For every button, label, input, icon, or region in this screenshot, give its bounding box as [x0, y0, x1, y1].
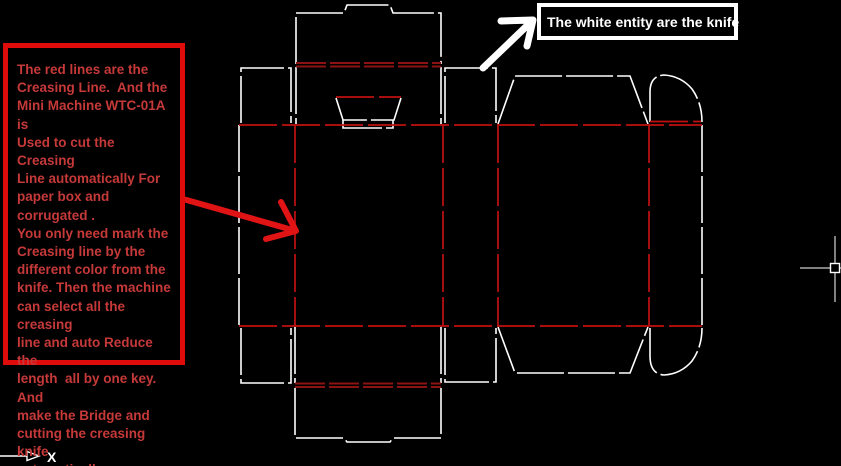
note-line: line and auto Reduce the	[17, 334, 176, 370]
tuck-slot-sides	[336, 98, 401, 120]
bottom-right-dust-flap	[445, 328, 496, 382]
crosshair-cursor	[800, 236, 841, 302]
tuck-slot-lip	[343, 120, 393, 128]
note-line: automatically.	[17, 461, 176, 466]
bottom-left-dust-flap	[241, 328, 291, 383]
knife-lines	[239, 5, 702, 442]
note-line: knife. Then the machine	[17, 279, 176, 297]
bottom-glue-tab	[650, 328, 702, 375]
note-line: Creasing line by the	[17, 243, 176, 261]
note-line: different color from the	[17, 261, 176, 279]
knife-label-text: The white entity are the knife	[547, 14, 739, 30]
note-line: length all by one key. And	[17, 370, 176, 406]
note-line: can select all the creasing	[17, 298, 176, 334]
creasing-note: The red lines are theCreasing Line. And …	[3, 43, 185, 365]
bottom-back-dust-flap	[498, 327, 648, 373]
annotation-arrows	[183, 20, 533, 239]
note-line: Mini Machine WTC-01A is	[17, 97, 176, 133]
note-line: paper box and corrugated .	[17, 188, 176, 224]
note-line: Line automatically For	[17, 170, 176, 188]
cad-canvas[interactable]: X The red lines are theCreasing Line. An…	[0, 0, 841, 466]
note-line: make the Bridge and	[17, 407, 176, 425]
note-line: The red lines are the	[17, 61, 176, 79]
crosshair-pickbox	[831, 264, 840, 273]
tuck-flap-outline	[296, 5, 441, 64]
note-line: You only need mark the	[17, 225, 176, 243]
top-glue-tab	[650, 75, 702, 122]
note-line: Used to cut the Creasing	[17, 134, 176, 170]
top-left-dust-flap	[241, 68, 291, 123]
lid-crease-lines	[295, 63, 441, 387]
bottom-tuck-flap-outline	[295, 388, 441, 442]
note-line: cutting the creasing knife	[17, 425, 176, 461]
top-back-dust-flap	[498, 76, 648, 124]
crease-lines	[239, 97, 702, 326]
top-right-dust-flap	[445, 68, 496, 123]
knife-label: The white entity are the knife	[537, 3, 738, 40]
note-line: Creasing Line. And the	[17, 79, 176, 97]
white-arrow	[483, 20, 533, 68]
